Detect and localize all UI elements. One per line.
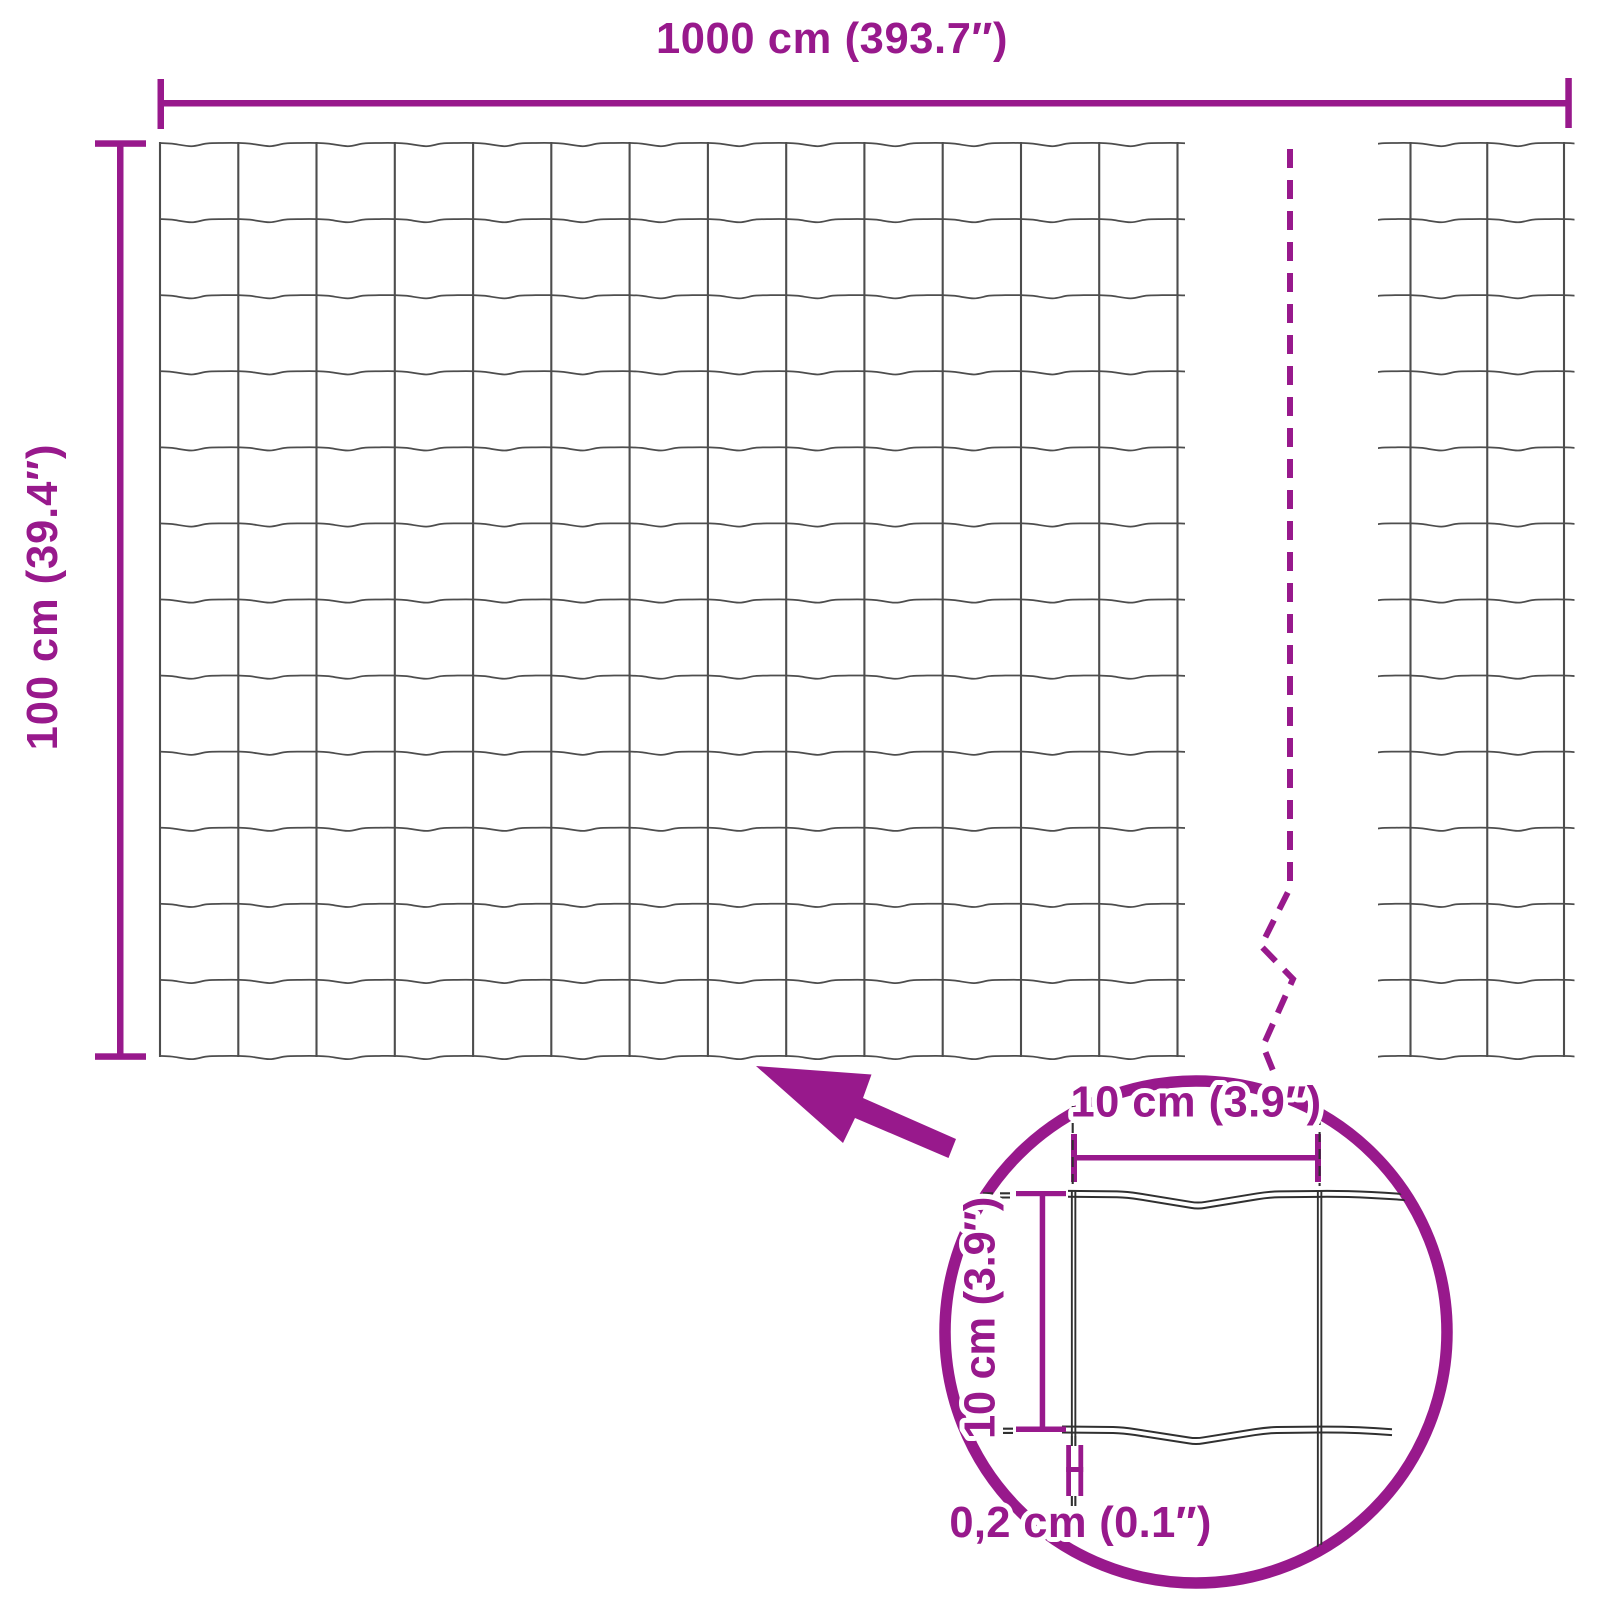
svg-text:10 cm (3.9″): 10 cm (3.9″): [1070, 1079, 1321, 1127]
svg-text:1000 cm (393.7″): 1000 cm (393.7″): [656, 15, 1008, 63]
svg-text:100 cm (39.4″): 100 cm (39.4″): [19, 444, 67, 751]
svg-text:10 cm (3.9″): 10 cm (3.9″): [957, 1197, 1005, 1439]
svg-text:0,2 cm (0.1″): 0,2 cm (0.1″): [949, 1499, 1211, 1547]
